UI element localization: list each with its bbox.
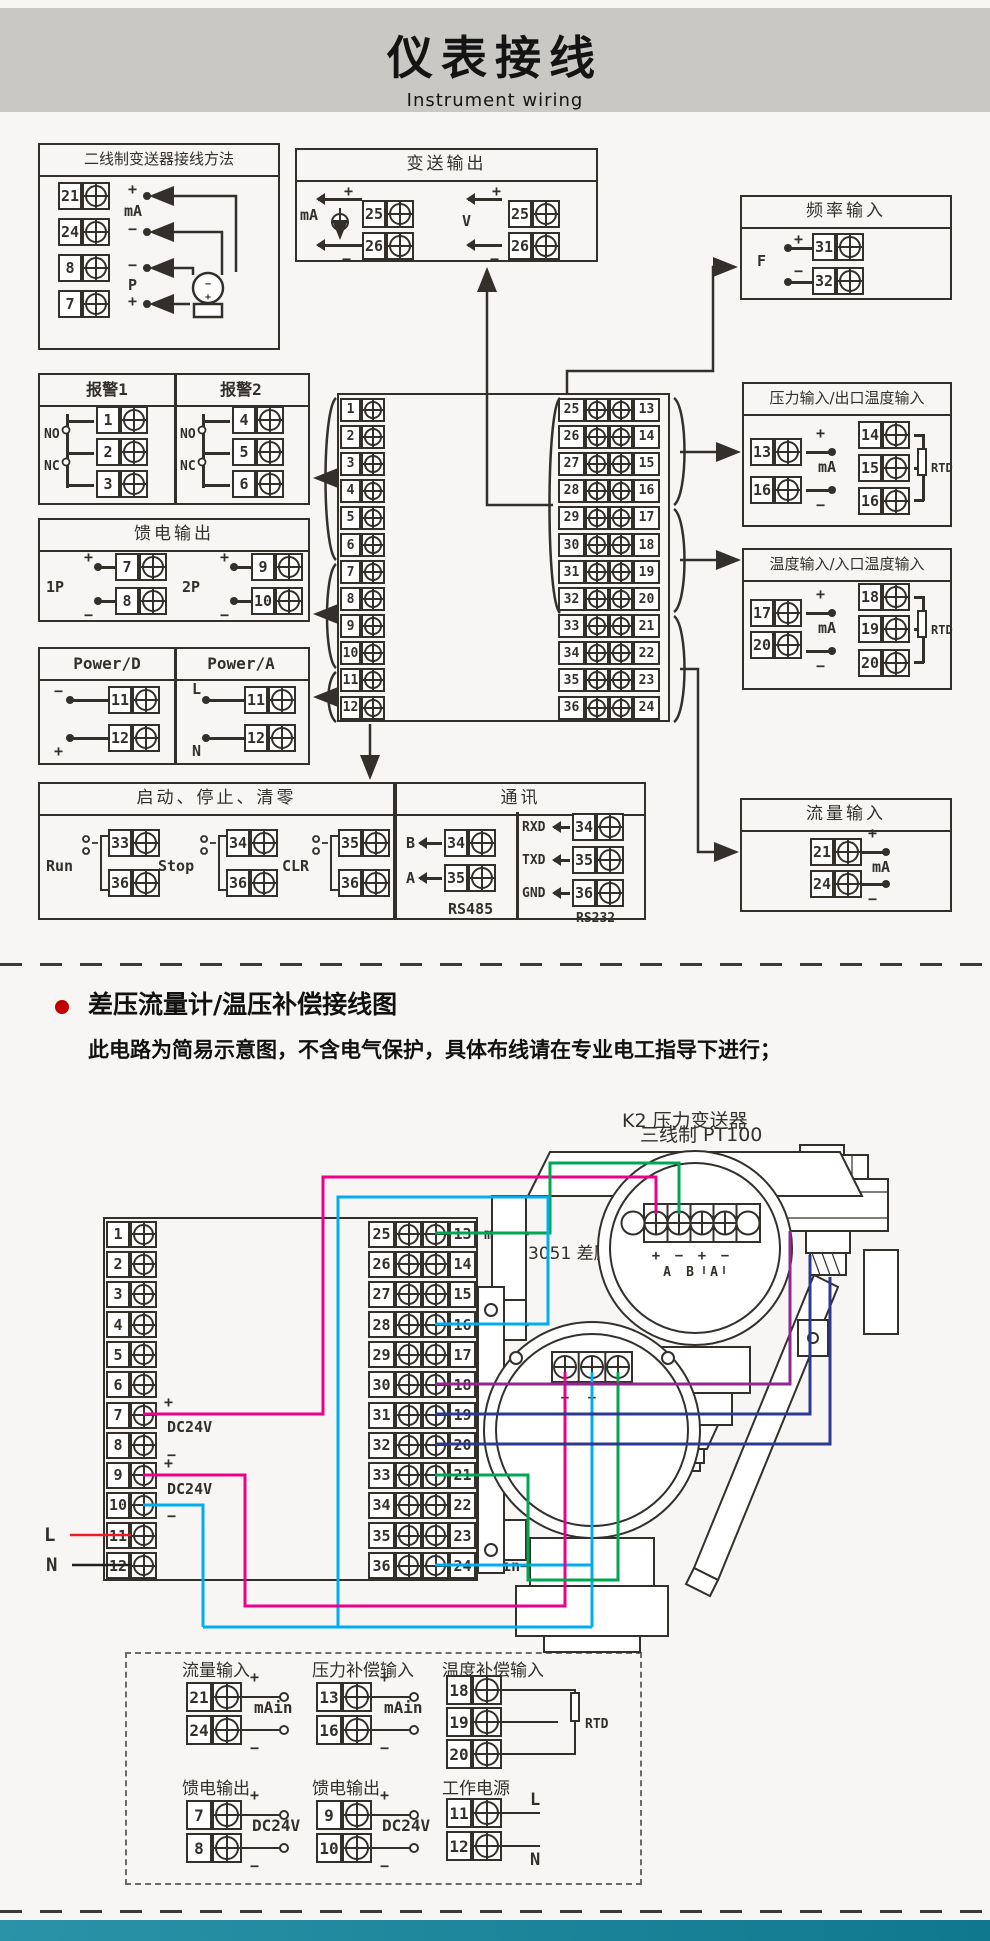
- bottom-wiring-overlay: + − + − A B A: [0, 1100, 990, 1920]
- braces-and-arrows: [318, 267, 736, 852]
- bullet-icon: [55, 1000, 69, 1014]
- bottom-note: 此电路为简易示意图，不含电气保护，具体布线请在专业电工指导下进行；: [88, 1040, 781, 1061]
- transmitter-minus: −: [205, 279, 211, 290]
- wire-dots: [143, 192, 151, 308]
- instrument-wiring-diagram: 二线制变送器接线方法 21 24 8 7 + mA − − P + 变送输出 m…: [0, 112, 990, 965]
- page-subtitle: Instrument wiring: [0, 90, 990, 111]
- wire-cyan-10: [143, 1505, 203, 1627]
- two-wire-box-wiring: [154, 196, 236, 317]
- header-band: 仪表接线 Instrument wiring: [0, 8, 990, 112]
- transmitter-plus: +: [205, 292, 211, 303]
- k2-sign: +: [652, 1248, 660, 1264]
- page-title: 仪表接线: [0, 22, 990, 88]
- section-divider: [0, 963, 990, 966]
- k2-port: A: [710, 1265, 718, 1280]
- top-wiring-overlay: − +: [0, 112, 990, 965]
- alarm-switch-contacts: [63, 427, 329, 854]
- k2-port: A: [663, 1265, 671, 1280]
- footer-bar: [0, 1920, 990, 1941]
- k2-sign: +: [698, 1248, 706, 1264]
- bottom-heading: 差压流量计/温压补偿接线图: [88, 992, 397, 1017]
- group-wires: [242, 1690, 575, 1852]
- k2-sign: −: [675, 1248, 683, 1264]
- k2-sign: −: [721, 1248, 729, 1264]
- current-source-symbol: [332, 208, 348, 236]
- k2-port: B: [686, 1265, 694, 1280]
- section-divider: [0, 1910, 990, 1913]
- dp-flowmeter-wiring-diagram: K2 压力变送器 三线制 PT100 3051 差压流量计 1234567891…: [0, 1100, 990, 1920]
- page: 仪表接线 Instrument wiring 二线制变送器接线方法 21 24 …: [0, 0, 990, 1941]
